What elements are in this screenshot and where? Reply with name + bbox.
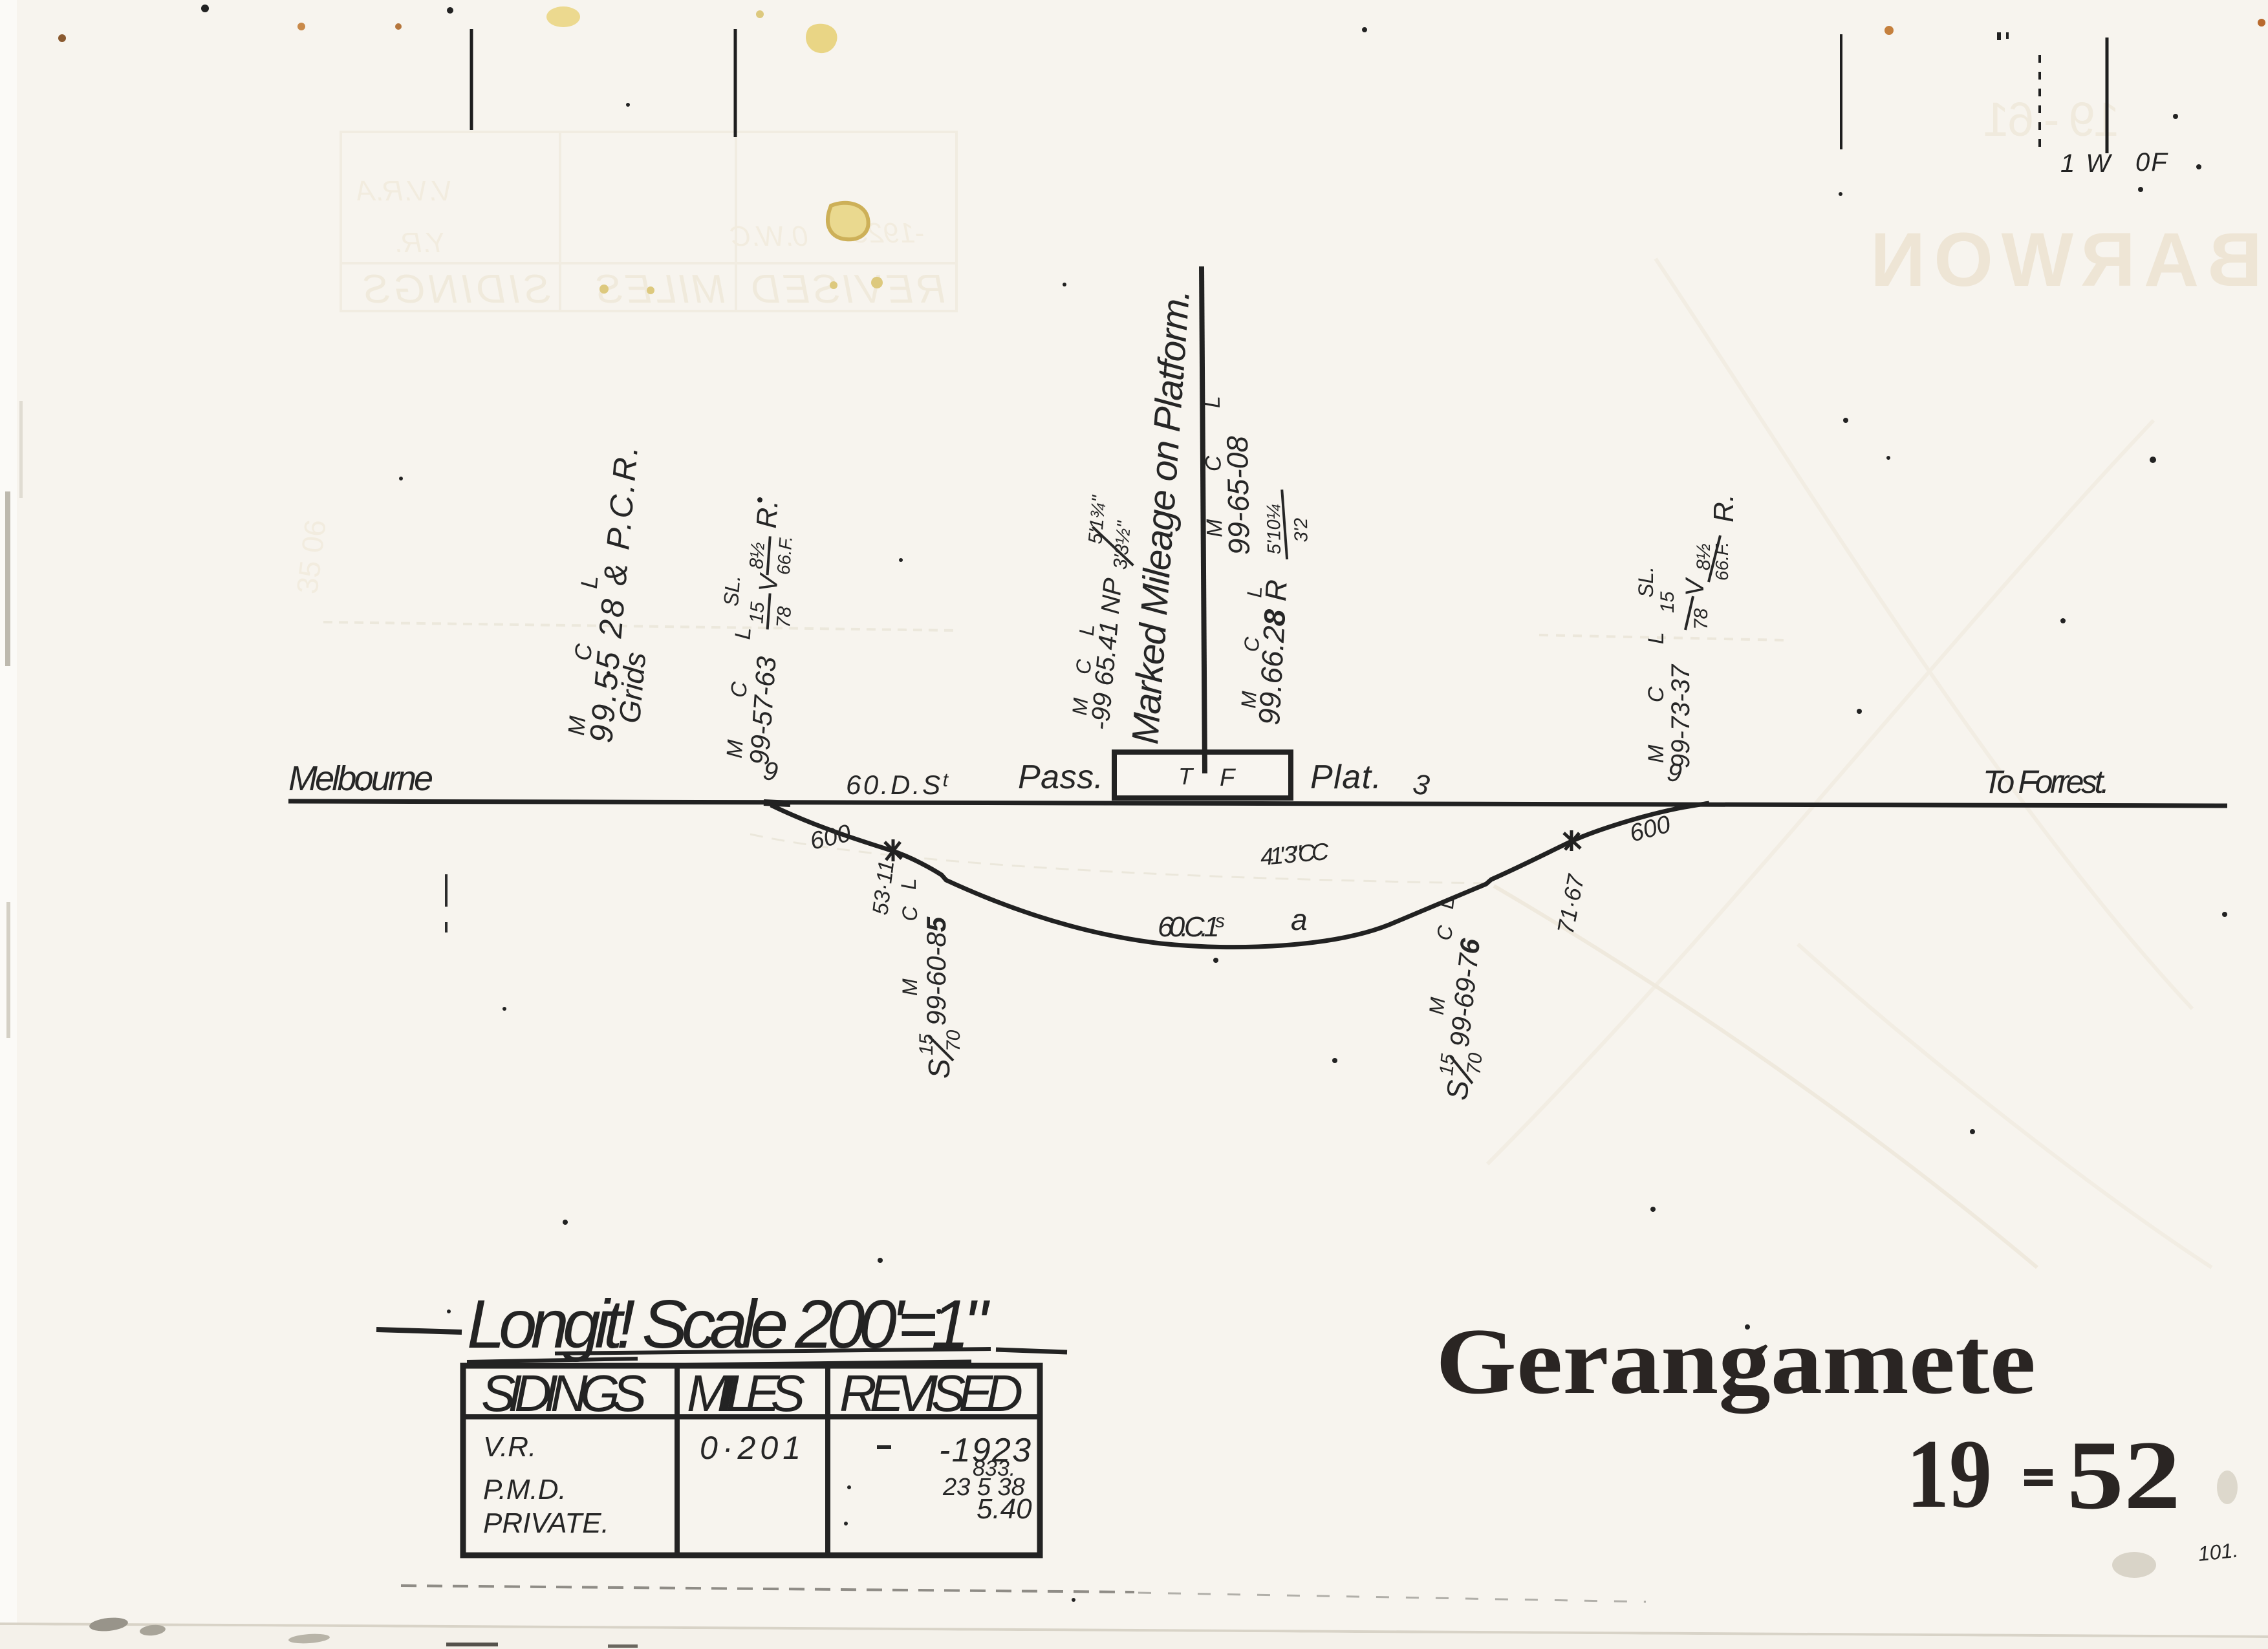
svg-text:0F: 0F [2135, 148, 2168, 177]
svg-text:99-65-08: 99-65-08 [1220, 435, 1256, 555]
svg-text:66.F.: 66.F. [773, 535, 796, 576]
svg-text:19 - 61: 19 - 61 [1983, 92, 2120, 146]
svg-text:T: T [1178, 763, 1194, 790]
svg-text:78: 78 [1690, 608, 1712, 630]
svg-text:5'1¾": 5'1¾" [1085, 494, 1110, 545]
svg-text:R.: R. [1708, 494, 1740, 523]
svg-text:101.: 101. [2197, 1538, 2240, 1566]
svg-text:19: 19 [1906, 1419, 1992, 1528]
svg-text:S: S [922, 1059, 956, 1079]
svg-text:M C: M C [898, 880, 922, 996]
svg-text:a: a [1291, 903, 1308, 936]
svg-text:5.40: 5.40 [977, 1493, 1032, 1525]
svg-text:66.F.: 66.F. [1712, 542, 1732, 581]
svg-text:Melbourne: Melbourne [288, 759, 433, 798]
svg-text:15: 15 [916, 1033, 937, 1055]
svg-text:0·201: 0·201 [700, 1430, 801, 1466]
svg-text:V.V.R.A: V.V.R.A [356, 175, 453, 207]
svg-text:99-60-85: 99-60-85 [921, 916, 951, 1026]
svg-text:3'3½": 3'3½" [1110, 519, 1136, 570]
svg-text:V.R.: V.R. [483, 1431, 536, 1463]
svg-text:70: 70 [943, 1029, 964, 1051]
svg-text:52: 52 [2067, 1421, 2181, 1529]
svg-text:REVISED: REVISED [839, 1364, 1023, 1422]
svg-text:PRIVATE.: PRIVATE. [483, 1507, 609, 1539]
svg-text:99-73-37: 99-73-37 [1667, 663, 1695, 768]
svg-text:MILES: MILES [687, 1364, 805, 1422]
svg-text:SL.: SL. [719, 574, 744, 607]
svg-text:70: 70 [1463, 1051, 1486, 1075]
svg-text:Grids: Grids [612, 651, 652, 724]
svg-text:M C L: M C L [1644, 614, 1669, 763]
svg-text:0.W.C: 0.W.C [729, 221, 808, 252]
svg-text:F: F [1220, 764, 1236, 792]
svg-text:78: 78 [773, 605, 795, 629]
svg-text:Pass.: Pass. [1018, 759, 1103, 796]
svg-text:L: L [897, 878, 920, 890]
svg-text:5'10¼: 5'10¼ [1264, 504, 1285, 555]
svg-text:8½: 8½ [746, 541, 769, 570]
svg-text:P.M.D.: P.M.D. [483, 1474, 567, 1505]
svg-text:15: 15 [1657, 591, 1678, 613]
svg-text:SIDINGS: SIDINGS [481, 1364, 647, 1422]
svg-text:Y.R.: Y.R. [393, 227, 446, 259]
svg-text:Gerangamete: Gerangamete [1436, 1309, 2036, 1414]
svg-text:BARWON: BARWON [1864, 217, 2262, 303]
svg-text:V: V [1681, 577, 1709, 596]
svg-text:3'2: 3'2 [1291, 518, 1312, 543]
svg-text:60.C.1s: 60.C.1s [1158, 911, 1225, 943]
svg-text:1 W: 1 W [2060, 149, 2112, 178]
svg-text:Plat.: Plat. [1310, 759, 1381, 796]
svg-text:15: 15 [746, 601, 768, 624]
svg-text:To Forrest.: To Forrest. [1983, 764, 2110, 800]
svg-text:L: L [1434, 896, 1459, 910]
svg-text:R.: R. [751, 499, 784, 529]
svg-text:SL.: SL. [1634, 566, 1658, 598]
svg-text:MILES: MILES [596, 267, 726, 312]
